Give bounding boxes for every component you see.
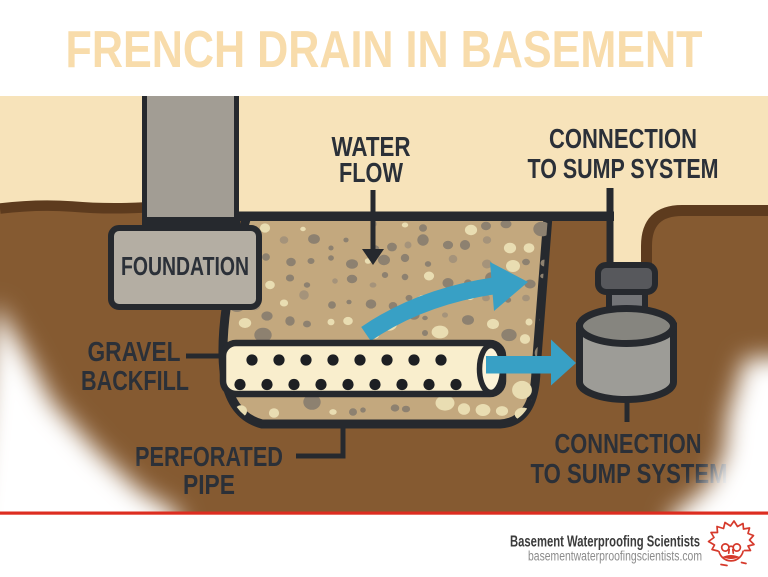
svg-text:FLOW: FLOW <box>339 157 403 188</box>
svg-text:BACKFILL: BACKFILL <box>81 365 189 396</box>
svg-text:FRENCH DRAIN IN BASEMENT: FRENCH DRAIN IN BASEMENT <box>66 21 703 79</box>
svg-text:PIPE: PIPE <box>183 469 235 500</box>
svg-text:CONNECTION: CONNECTION <box>555 428 702 459</box>
svg-text:FOUNDATION: FOUNDATION <box>121 251 249 281</box>
svg-text:CONNECTION: CONNECTION <box>549 123 697 154</box>
svg-text:GRAVEL: GRAVEL <box>88 336 181 367</box>
svg-text:TO SUMP SYSTEM: TO SUMP SYSTEM <box>531 458 728 489</box>
svg-text:TO SUMP SYSTEM: TO SUMP SYSTEM <box>528 153 719 184</box>
svg-text:PERFORATED: PERFORATED <box>135 441 283 472</box>
svg-text:basementwaterproofingscientist: basementwaterproofingscientists.com <box>528 549 702 564</box>
